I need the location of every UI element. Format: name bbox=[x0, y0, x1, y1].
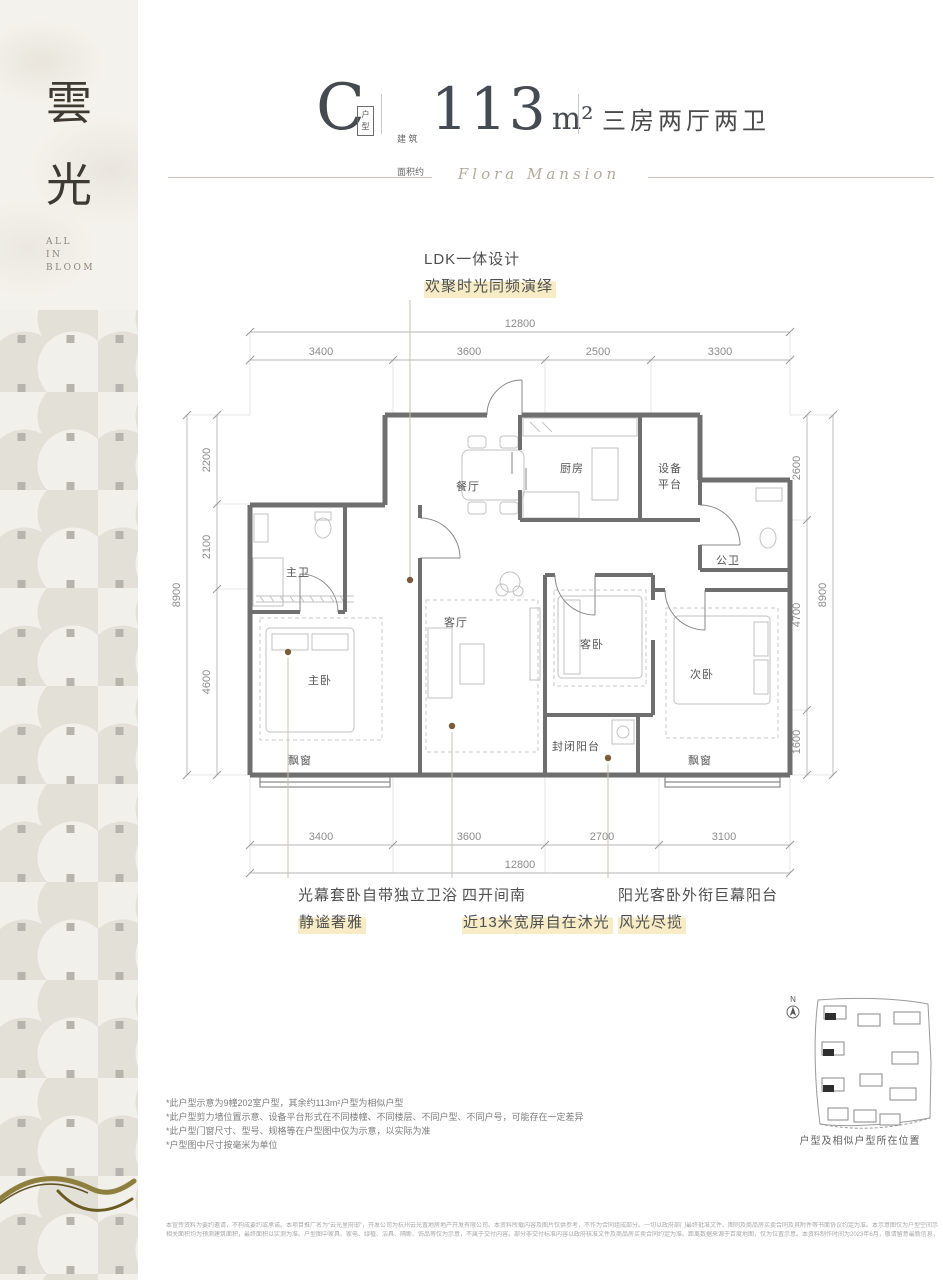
north-label: N bbox=[790, 995, 796, 1004]
room-equip-line1: 设备 bbox=[658, 461, 682, 475]
footnote-1: *此户型示意为9幢202室户型，其余约113m²户型为相似户型 bbox=[166, 1096, 584, 1110]
dim-top-s4: 3300 bbox=[708, 346, 732, 358]
dim-left-s2: 2100 bbox=[201, 535, 213, 559]
callout-ldk: LDK一体设计 欢聚时光同频演绎 bbox=[424, 248, 556, 298]
leader-lines bbox=[285, 300, 611, 878]
room-equip-line2: 平台 bbox=[658, 477, 682, 491]
room-master-bed: 主卧 bbox=[308, 674, 332, 687]
dim-right-s1: 2600 bbox=[791, 456, 803, 480]
footnote-2: *此户型剪力墙位置示意、设备平台形式在不同楼幢、不同楼层、不同户型、不同户号，可… bbox=[166, 1110, 584, 1124]
dim-left-total: 8900 bbox=[171, 583, 183, 607]
callout-south-bays: 四开间南 近13米宽屏自在沐光 bbox=[462, 884, 613, 934]
callout-south-bays-line2: 近13米宽屏自在沐光 bbox=[462, 911, 613, 934]
footnote-4: *户型图中尺寸按毫米为单位 bbox=[166, 1138, 584, 1152]
script-rule-left bbox=[168, 177, 432, 178]
area-value-group: 113 m² bbox=[431, 80, 594, 138]
dim-bottom-total: 12800 bbox=[505, 859, 536, 871]
room-balcony: 封闭阳台 bbox=[552, 739, 600, 753]
area-prefix-label: 建 筑 面积约 bbox=[397, 112, 424, 200]
dim-left-s1: 2200 bbox=[201, 448, 213, 472]
callout-master-suite-line2: 静谧奢雅 bbox=[298, 911, 458, 934]
callout-balcony-line2: 风光尽揽 bbox=[618, 911, 778, 934]
room-kitchen: 厨房 bbox=[560, 462, 584, 475]
callout-master-suite-highlight: 静谧奢雅 bbox=[298, 911, 366, 934]
callout-south-bays-highlight: 近13米宽屏自在沐光 bbox=[462, 911, 613, 934]
area-prefix-line-1: 建 筑 bbox=[397, 134, 424, 145]
callout-balcony: 阳光客卧外衔巨幕阳台 风光尽揽 bbox=[618, 884, 778, 934]
dim-right-s2: 4700 bbox=[791, 603, 803, 627]
tagline-line-2: IN bbox=[46, 249, 95, 262]
footnote-3: *此户型门窗尺寸、型号、规格等在户型图中仅为示意，以实际为准 bbox=[166, 1124, 584, 1138]
dim-right-s3: 1600 bbox=[791, 730, 803, 754]
callout-balcony-line1: 阳光客卧外衔巨幕阳台 bbox=[618, 884, 778, 905]
dim-top-s1: 3400 bbox=[309, 346, 333, 358]
dim-bottom-s4: 3100 bbox=[712, 831, 736, 843]
brand-char-1: 雲 bbox=[22, 80, 116, 126]
callout-master-suite: 光幕套卧自带独立卫浴 静谧奢雅 bbox=[298, 884, 458, 934]
rooms-summary-label: 三房两厅两卫 bbox=[602, 101, 770, 136]
callout-ldk-line1: LDK一体设计 bbox=[424, 248, 556, 269]
minimap-caption: 户型及相似户型所在位置 bbox=[770, 1132, 943, 1147]
tagline-line-1: ALL bbox=[46, 236, 95, 249]
gold-ribbon-ornament bbox=[0, 1155, 140, 1241]
area-unit: m² bbox=[552, 101, 594, 137]
dim-left-s3: 4600 bbox=[201, 670, 213, 694]
poster-page: 雲 光 ALL IN BLOOM C 户型 建 筑 面积约 113 m² 三房两… bbox=[0, 0, 943, 1280]
walls-outer bbox=[250, 415, 790, 775]
area-value: 113 bbox=[431, 80, 548, 138]
room-public-bath: 公卫 bbox=[716, 555, 740, 567]
brand-char-2: 光 bbox=[22, 162, 116, 208]
legal-line-1: 本宣传资料为要约邀请，不构成要约或承诺。本项目推广名为“云光里府邸”，开发公司为… bbox=[166, 1222, 938, 1231]
dim-right-total: 8900 bbox=[817, 583, 829, 607]
floorplan-drawing: 12800 3400 3600 2500 3300 3400 3600 2700… bbox=[160, 300, 940, 965]
callout-ldk-highlight: 欢聚时光同频演绎 bbox=[424, 275, 556, 298]
footnotes: *此户型示意为9幢202室户型，其余约113m²户型为相似户型 *此户型剪力墙位… bbox=[166, 1096, 584, 1152]
script-title: Flora Mansion bbox=[444, 165, 634, 183]
dim-top-s2: 3600 bbox=[457, 346, 481, 358]
room-living: 客厅 bbox=[444, 615, 468, 629]
bay-windows bbox=[260, 777, 780, 787]
room-guest-bed: 客卧 bbox=[580, 637, 604, 651]
script-rule-right bbox=[648, 177, 934, 178]
furniture-layer bbox=[253, 418, 782, 752]
unit-type-badge: 户型 bbox=[357, 106, 374, 136]
room-bay-window-1: 飘窗 bbox=[288, 753, 312, 767]
walls-inner bbox=[250, 415, 790, 775]
callout-ldk-line2: 欢聚时光同频演绎 bbox=[424, 275, 556, 298]
callout-master-suite-line1: 光幕套卧自带独立卫浴 bbox=[298, 884, 458, 905]
brand-tagline: ALL IN BLOOM bbox=[46, 236, 95, 275]
dimension-labels: 12800 3400 3600 2500 3300 3400 3600 2700… bbox=[171, 318, 829, 871]
room-second-bed: 次卧 bbox=[690, 667, 714, 681]
dim-bottom-s2: 3600 bbox=[457, 831, 481, 843]
site-buildings bbox=[822, 1006, 920, 1125]
room-dining: 餐厅 bbox=[456, 479, 480, 493]
legal-line-2: 相关面积均为预测建筑面积，最终面积以实测为准。户型图中家具、家电、绿植、洁具、隔… bbox=[166, 1231, 938, 1240]
dim-bottom-s1: 3400 bbox=[309, 831, 333, 843]
header-divider-2 bbox=[578, 94, 579, 134]
dim-top-total: 12800 bbox=[505, 318, 536, 330]
callout-south-bays-line1: 四开间南 bbox=[462, 884, 613, 905]
dim-top-s3: 2500 bbox=[586, 346, 610, 358]
site-minimap: N bbox=[778, 992, 942, 1132]
north-arrow: N bbox=[787, 995, 799, 1018]
legal-disclaimer: 本宣传资料为要约邀请，不构成要约或承诺。本项目推广名为“云光里府邸”，开发公司为… bbox=[166, 1222, 938, 1240]
room-bay-window-2: 飘窗 bbox=[688, 753, 712, 767]
room-master-bath: 主卫 bbox=[286, 566, 310, 579]
callout-balcony-highlight: 风光尽揽 bbox=[618, 911, 686, 934]
tagline-line-3: BLOOM bbox=[46, 262, 95, 275]
header-divider-1 bbox=[381, 94, 382, 134]
dim-bottom-s3: 2700 bbox=[590, 831, 614, 843]
